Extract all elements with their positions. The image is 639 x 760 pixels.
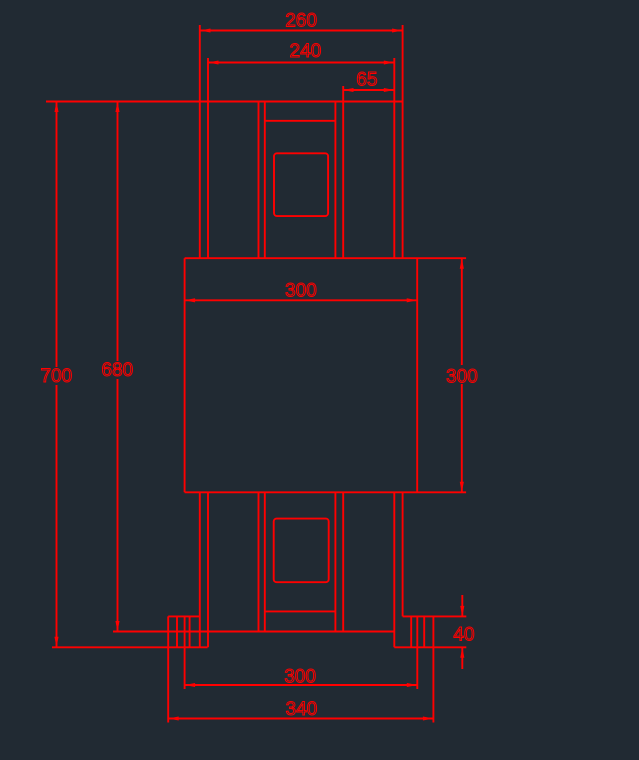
svg-text:300: 300: [284, 667, 316, 688]
svg-text:700: 700: [41, 366, 73, 387]
svg-text:260: 260: [285, 10, 317, 31]
svg-text:300: 300: [446, 366, 478, 387]
svg-text:240: 240: [290, 41, 322, 62]
svg-text:340: 340: [286, 699, 318, 720]
svg-text:680: 680: [102, 360, 134, 381]
svg-text:65: 65: [356, 69, 377, 90]
svg-text:40: 40: [453, 625, 474, 646]
svg-text:300: 300: [285, 281, 317, 302]
